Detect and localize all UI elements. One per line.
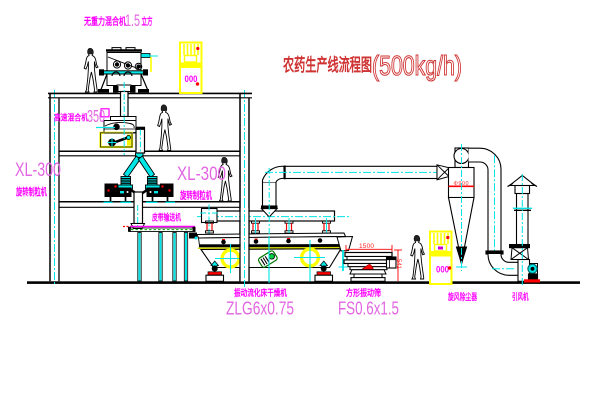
svg-text:ZLG6x0.75: ZLG6x0.75 xyxy=(226,298,294,319)
svg-text:1500: 1500 xyxy=(359,243,374,250)
svg-text:XL-300: XL-300 xyxy=(177,164,226,185)
svg-text:无重力混合机: 无重力混合机 xyxy=(83,15,126,28)
svg-text:000: 000 xyxy=(436,265,449,275)
svg-text:000: 000 xyxy=(185,74,198,84)
svg-text:振动流化床干燥机: 振动流化床干燥机 xyxy=(234,287,287,298)
svg-text:XL-300: XL-300 xyxy=(15,160,61,181)
svg-text:旋转制粒机: 旋转制粒机 xyxy=(15,186,47,199)
svg-text:(500kg/h): (500kg/h) xyxy=(372,50,462,81)
svg-text:皮带输送机: 皮带输送机 xyxy=(151,212,181,223)
svg-text:农药生产线流程图: 农药生产线流程图 xyxy=(282,55,372,75)
svg-text:1.5: 1.5 xyxy=(125,11,140,30)
svg-text:方形振动筛: 方形振动筛 xyxy=(346,287,381,298)
svg-text:旋转制粒机: 旋转制粒机 xyxy=(179,189,212,202)
svg-text:FS0.6x1.5: FS0.6x1.5 xyxy=(338,298,399,319)
svg-text:旋风除尘器: 旋风除尘器 xyxy=(447,291,477,302)
svg-text:立方: 立方 xyxy=(142,15,153,28)
svg-text:350: 350 xyxy=(87,106,105,126)
svg-text:引风机: 引风机 xyxy=(512,291,529,302)
svg-text:高速混合机: 高速混合机 xyxy=(54,113,88,123)
